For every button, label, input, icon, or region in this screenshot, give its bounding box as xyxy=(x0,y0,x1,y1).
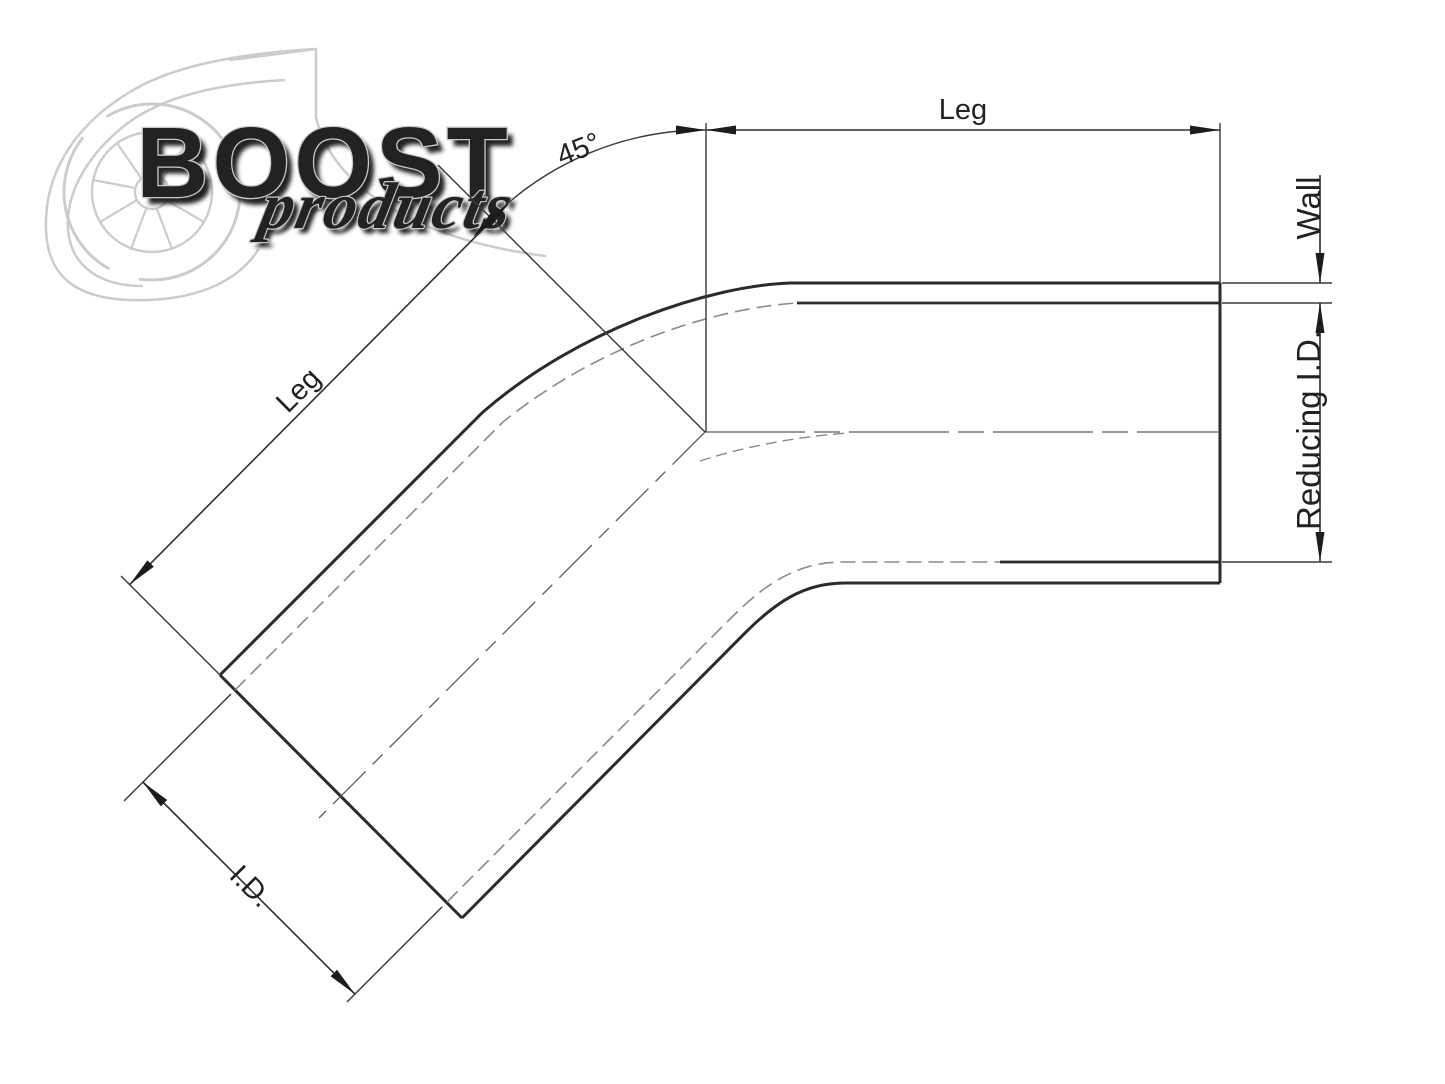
label-wall: Wall xyxy=(1290,177,1327,240)
elbow-hidden-edges xyxy=(235,303,1000,902)
arrowheads xyxy=(129,126,1324,995)
label-leg-right: Leg xyxy=(939,94,987,126)
arrow-wall-lower xyxy=(1316,303,1325,333)
technical-drawing-page: BOOST BOOST products products xyxy=(0,0,1445,1084)
arrow-id-lower xyxy=(331,970,355,994)
ext-id-upper xyxy=(124,694,231,801)
ext-oblique-45 xyxy=(438,165,705,432)
dim-leg-left xyxy=(129,204,508,585)
hidden-reduction-curve xyxy=(700,433,848,461)
label-id: I.D. xyxy=(223,859,278,914)
arrow-leg-right-left xyxy=(706,126,736,135)
arrow-id-upper xyxy=(143,782,167,806)
ext-id-lower xyxy=(347,907,442,1002)
centerline-left-leg xyxy=(319,432,705,818)
label-leg-left: Leg xyxy=(270,362,327,419)
arrow-wall-upper xyxy=(1316,253,1325,283)
arrow-leg-left-lower xyxy=(129,560,153,584)
centerlines xyxy=(319,432,1220,818)
elbow-diagram-canvas: BOOST BOOST products products xyxy=(0,0,1445,1084)
ext-small-end-face xyxy=(121,576,220,675)
arrow-arc-top xyxy=(676,126,706,135)
label-reducing-id: Reducing I.D. xyxy=(1290,330,1327,530)
watermark-logo: BOOST BOOST products products xyxy=(46,49,545,300)
arrow-reducing-id-lower xyxy=(1316,532,1325,562)
outer-wall-bottom xyxy=(462,583,1220,918)
arrow-leg-right-right xyxy=(1190,126,1220,135)
label-angle-45: 45° xyxy=(553,127,605,173)
hidden-inner-wall-upper xyxy=(235,303,797,690)
elbow-visible-edges xyxy=(220,283,1220,918)
